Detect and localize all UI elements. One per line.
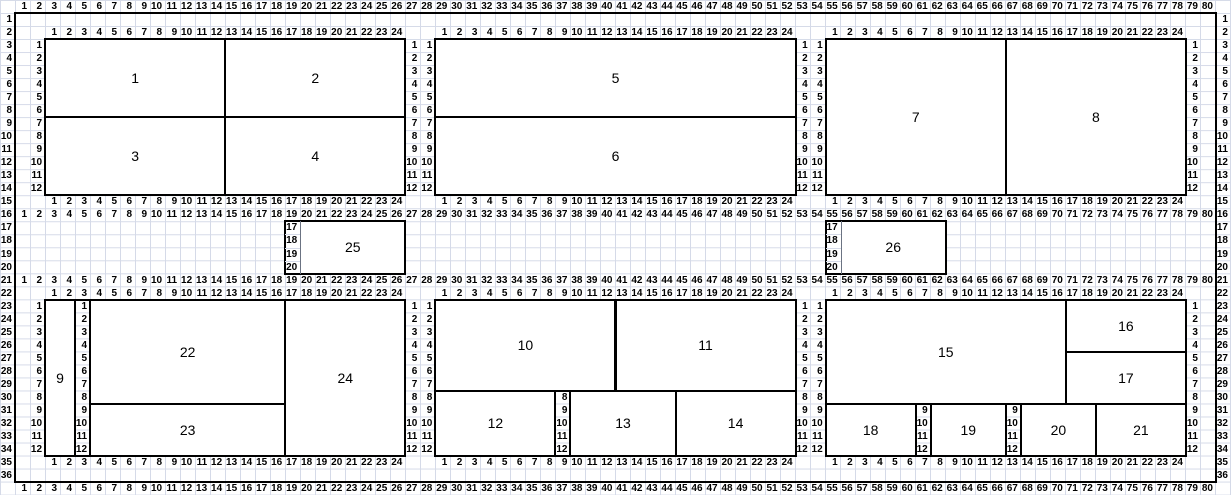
inner-column-header-cell: 7 (916, 456, 931, 469)
column-header-cell: 73 (1096, 274, 1111, 287)
inner-column-header-cell: 9 (555, 195, 570, 208)
column-header-cell: 49 (736, 0, 751, 13)
inner-row-header-cell: 11 (796, 169, 811, 182)
row-header-cell: 6 (1216, 78, 1231, 91)
column-header-cell: 62 (931, 482, 946, 495)
inner-row-header-cell: 7 (1186, 117, 1201, 130)
column-header-cell: 71 (1066, 274, 1081, 287)
column-header-cell: 69 (1036, 482, 1051, 495)
column-header-cell: 47 (706, 208, 721, 221)
inner-row-header-cell: 12 (811, 182, 826, 195)
column-header-cell: 68 (1021, 0, 1036, 13)
label-cell: 12 (916, 443, 931, 456)
inner-row-header-cell: 1 (405, 39, 420, 52)
column-header-cell: 9 (135, 0, 150, 13)
column-header-cell: 79 (1186, 0, 1201, 13)
inner-column-header-cell: 8 (150, 456, 165, 469)
label-cell: 3 (75, 326, 90, 339)
column-header-cell: 63 (946, 482, 961, 495)
row-header-cell: 35 (0, 456, 15, 469)
column-header-cell: 4 (60, 274, 75, 287)
row-header-cell: 10 (0, 130, 15, 143)
column-header-cell: 43 (646, 208, 661, 221)
inner-row-header-cell: 10 (30, 156, 45, 169)
box-label-9: 9 (45, 300, 75, 456)
column-header-cell: 77 (1156, 208, 1171, 221)
row-header-cell: 26 (0, 339, 15, 352)
column-header-cell: 44 (661, 0, 676, 13)
column-header-cell: 48 (721, 0, 736, 13)
inner-column-header-cell: 15 (255, 195, 270, 208)
column-header-cell: 49 (736, 482, 751, 495)
inner-row-header-cell: 3 (796, 65, 811, 78)
inner-row-header-cell: 7 (811, 117, 826, 130)
label-cell: 11 (555, 430, 570, 443)
inner-row-header-cell: 1 (405, 300, 420, 313)
inner-row-header-cell: 6 (30, 365, 45, 378)
column-header-cell: 45 (676, 208, 691, 221)
inner-column-header-cell: 6 (120, 456, 135, 469)
row-header-cell: 29 (1216, 378, 1231, 391)
row-header-cell: 8 (1216, 104, 1231, 117)
column-header-cell: 33 (495, 208, 510, 221)
inner-row-header-cell: 5 (811, 91, 826, 104)
column-header-cell: 7 (105, 482, 120, 495)
label-cell: 11 (916, 430, 931, 443)
inner-row-header-cell: 1 (420, 39, 435, 52)
row-header-cell: 18 (0, 234, 15, 247)
row-header-cell: 14 (1216, 182, 1231, 195)
inner-column-header-cell: 23 (375, 195, 390, 208)
column-header-cell: 18 (270, 0, 285, 13)
column-header-cell: 28 (420, 208, 435, 221)
inner-row-header-cell: 2 (30, 313, 45, 326)
column-header-cell: 54 (811, 482, 826, 495)
box-label-17: 17 (1066, 352, 1186, 404)
inner-column-header-cell: 21 (736, 195, 751, 208)
column-header-cell: 23 (345, 0, 360, 13)
column-header-cell: 63 (946, 274, 961, 287)
inner-column-header-cell: 4 (480, 456, 495, 469)
column-header-cell: 47 (706, 0, 721, 13)
column-header-cell: 57 (856, 482, 871, 495)
column-header-cell: 34 (510, 274, 525, 287)
column-header-cell: 80 (1201, 0, 1216, 13)
inner-column-header-cell: 13 (1006, 456, 1021, 469)
column-header-cell: 71 (1066, 482, 1081, 495)
inner-row-header-cell: 12 (1186, 182, 1201, 195)
column-header-cell: 66 (991, 482, 1006, 495)
column-header-cell: 45 (676, 482, 691, 495)
column-header-cell: 15 (225, 0, 240, 13)
column-header-cell: 53 (796, 208, 811, 221)
inner-row-header-cell: 5 (1186, 91, 1201, 104)
column-header-cell: 45 (676, 0, 691, 13)
inner-column-header-cell: 12 (210, 195, 225, 208)
column-header-cell: 79 (1186, 482, 1201, 495)
column-header-cell: 8 (120, 0, 135, 13)
inner-row-header-cell: 9 (811, 404, 826, 417)
column-header-cell: 11 (165, 0, 180, 13)
inner-row-header-cell: 12 (796, 443, 811, 456)
row-header-cell: 9 (0, 117, 15, 130)
row-header-cell: 22 (1216, 287, 1231, 300)
inner-row-header-cell: 7 (420, 378, 435, 391)
inner-column-header-cell: 16 (661, 195, 676, 208)
column-header-cell: 9 (135, 208, 150, 221)
inner-column-header-cell: 3 (465, 195, 480, 208)
label-cell: 9 (75, 404, 90, 417)
inner-column-header-cell: 18 (300, 456, 315, 469)
column-header-cell: 73 (1096, 208, 1111, 221)
label-cell: 20 (285, 261, 300, 274)
column-header-cell: 45 (676, 274, 691, 287)
column-header-cell: 41 (616, 274, 631, 287)
inner-row-header-cell: 8 (811, 391, 826, 404)
inner-column-header-cell: 8 (150, 195, 165, 208)
column-header-cell: 30 (450, 208, 465, 221)
column-header-cell: 46 (691, 482, 706, 495)
inner-column-header-cell: 8 (540, 195, 555, 208)
column-header-cell: 55 (826, 0, 841, 13)
row-header-cell: 1 (0, 13, 15, 26)
column-header-cell: 31 (465, 482, 480, 495)
column-header-cell: 60 (901, 274, 916, 287)
box-label-6: 6 (435, 117, 795, 195)
column-header-cell: 8 (120, 482, 135, 495)
column-header-cell: 1 (15, 274, 30, 287)
row-header-cell: 30 (1216, 391, 1231, 404)
inner-column-header-cell: 1 (826, 195, 841, 208)
column-header-cell: 67 (1006, 274, 1021, 287)
column-header-cell: 10 (150, 274, 165, 287)
inner-row-header-cell: 8 (420, 130, 435, 143)
inner-column-header-cell: 9 (165, 195, 180, 208)
column-header-cell: 63 (946, 0, 961, 13)
column-header-cell: 46 (691, 208, 706, 221)
column-header-cell: 33 (495, 0, 510, 13)
column-header-cell: 59 (886, 482, 901, 495)
inner-column-header-cell: 24 (1171, 195, 1186, 208)
inner-row-header-cell: 8 (30, 130, 45, 143)
inner-row-header-cell: 11 (811, 430, 826, 443)
column-header-cell: 2 (30, 482, 45, 495)
column-header-cell: 51 (766, 274, 781, 287)
inner-column-header-cell: 8 (540, 456, 555, 469)
inner-row-header-cell: 4 (1186, 78, 1201, 91)
inner-row-header-cell: 2 (405, 52, 420, 65)
column-header-cell: 34 (510, 482, 525, 495)
column-header-cell: 12 (180, 482, 195, 495)
inner-row-header-cell: 10 (811, 156, 826, 169)
inner-column-header-cell: 9 (165, 456, 180, 469)
inner-row-header-cell: 3 (1186, 65, 1201, 78)
inner-row-header-cell: 1 (420, 300, 435, 313)
inner-column-header-cell: 24 (781, 456, 796, 469)
column-header-cell: 14 (210, 0, 225, 13)
column-header-cell: 74 (1111, 0, 1126, 13)
box-label-7: 7 (826, 39, 1006, 195)
inner-column-header-cell: 7 (525, 456, 540, 469)
column-header-cell: 49 (736, 208, 751, 221)
column-header-cell: 35 (525, 482, 540, 495)
column-header-cell: 17 (255, 482, 270, 495)
column-header-cell: 43 (646, 274, 661, 287)
inner-column-header-cell: 5 (886, 456, 901, 469)
column-header-cell: 41 (616, 482, 631, 495)
inner-column-header-cell: 12 (991, 456, 1006, 469)
column-header-cell: 4 (60, 208, 75, 221)
label-cell: 10 (75, 417, 90, 430)
label-cell: 10 (555, 417, 570, 430)
inner-column-header-cell: 1 (435, 195, 450, 208)
column-header-cell: 9 (135, 274, 150, 287)
inner-column-header-cell: 15 (1036, 195, 1051, 208)
column-header-cell: 33 (495, 482, 510, 495)
label-cell: 10 (916, 417, 931, 430)
inner-row-header-cell: 2 (420, 52, 435, 65)
column-header-cell: 27 (405, 274, 420, 287)
row-header-cell: 14 (0, 182, 15, 195)
inner-row-header-cell: 2 (1186, 313, 1201, 326)
inner-column-header-cell: 5 (495, 456, 510, 469)
inner-column-header-cell: 5 (495, 195, 510, 208)
inner-column-header-cell: 15 (255, 456, 270, 469)
column-header-cell: 42 (631, 208, 646, 221)
inner-row-header-cell: 4 (405, 339, 420, 352)
label-cell: 2 (75, 313, 90, 326)
inner-row-header-cell: 12 (405, 443, 420, 456)
row-header-cell: 10 (1216, 130, 1231, 143)
column-header-cell: 50 (751, 274, 766, 287)
inner-column-header-cell: 1 (45, 456, 60, 469)
inner-row-header-cell: 11 (30, 430, 45, 443)
inner-column-header-cell: 4 (871, 195, 886, 208)
row-header-cell: 23 (1216, 300, 1231, 313)
inner-row-header-cell: 10 (405, 417, 420, 430)
row-header-cell: 28 (1216, 365, 1231, 378)
inner-row-header-cell: 12 (1186, 443, 1201, 456)
inner-row-header-cell: 4 (30, 78, 45, 91)
column-header-cell: 1 (15, 0, 30, 13)
inner-row-header-cell: 7 (796, 117, 811, 130)
column-header-cell: 42 (631, 274, 646, 287)
inner-row-header-cell: 1 (796, 300, 811, 313)
column-header-cell: 36 (540, 208, 555, 221)
inner-row-header-cell: 5 (30, 91, 45, 104)
column-header-cell: 11 (165, 208, 180, 221)
label-cell: 9 (555, 404, 570, 417)
column-header-cell: 35 (525, 208, 540, 221)
label-cell: 9 (916, 404, 931, 417)
inner-column-header-cell: 2 (60, 195, 75, 208)
column-header-cell: 56 (841, 274, 856, 287)
column-header-cell: 56 (841, 0, 856, 13)
inner-row-header-cell: 5 (405, 352, 420, 365)
column-header-cell: 20 (300, 482, 315, 495)
column-header-cell: 13 (195, 208, 210, 221)
label-cell: 12 (555, 443, 570, 456)
row-header-cell: 15 (1216, 195, 1231, 208)
column-header-cell: 42 (631, 482, 646, 495)
column-header-cell: 3 (45, 482, 60, 495)
inner-column-header-cell: 20 (330, 456, 345, 469)
inner-row-header-cell: 2 (811, 313, 826, 326)
column-header-cell: 1 (15, 208, 30, 221)
inner-row-header-cell: 12 (30, 443, 45, 456)
inner-column-header-cell: 10 (961, 195, 976, 208)
inner-column-header-cell: 5 (105, 456, 120, 469)
column-header-cell: 70 (1051, 0, 1066, 13)
label-cell: 1 (75, 300, 90, 313)
inner-row-header-cell: 9 (796, 404, 811, 417)
box-label-8: 8 (1006, 39, 1186, 195)
column-header-cell: 80 (1201, 208, 1216, 221)
column-header-cell: 22 (330, 0, 345, 13)
column-header-cell: 18 (270, 274, 285, 287)
inner-row-header-cell: 8 (1186, 391, 1201, 404)
label-cell: 17 (285, 221, 300, 234)
inner-column-header-cell: 1 (45, 195, 60, 208)
inner-column-header-cell: 20 (721, 456, 736, 469)
inner-row-header-cell: 10 (1186, 156, 1201, 169)
inner-column-header-cell: 17 (676, 456, 691, 469)
column-header-cell: 50 (751, 482, 766, 495)
column-header-cell: 25 (375, 482, 390, 495)
inner-row-header-cell: 10 (796, 156, 811, 169)
inner-column-header-cell: 19 (315, 456, 330, 469)
column-header-cell: 57 (856, 274, 871, 287)
column-header-cell: 15 (225, 482, 240, 495)
column-header-cell: 25 (375, 0, 390, 13)
inner-column-header-cell: 5 (886, 195, 901, 208)
inner-row-header-cell: 11 (420, 169, 435, 182)
column-header-cell: 58 (871, 274, 886, 287)
column-header-cell: 73 (1096, 0, 1111, 13)
row-header-cell: 2 (0, 26, 15, 39)
row-header-cell: 36 (0, 469, 15, 482)
column-header-cell: 8 (120, 274, 135, 287)
column-header-cell: 54 (811, 0, 826, 13)
row-header-cell: 1 (1216, 13, 1231, 26)
inner-column-header-cell: 2 (841, 456, 856, 469)
column-header-cell: 20 (300, 274, 315, 287)
column-header-cell: 19 (285, 482, 300, 495)
label-cell: 7 (75, 378, 90, 391)
label-cell: 18 (285, 234, 300, 247)
column-header-cell: 3 (45, 208, 60, 221)
row-header-cell: 35 (1216, 456, 1231, 469)
row-header-cell: 12 (1216, 156, 1231, 169)
inner-column-header-cell: 17 (1066, 456, 1081, 469)
column-header-cell: 4 (60, 482, 75, 495)
column-header-cell: 74 (1111, 482, 1126, 495)
row-header-cell: 33 (1216, 430, 1231, 443)
inner-row-header-cell: 3 (420, 326, 435, 339)
row-header-cell: 31 (1216, 404, 1231, 417)
inner-column-header-cell: 14 (631, 195, 646, 208)
inner-column-header-cell: 18 (691, 195, 706, 208)
column-header-cell: 12 (180, 0, 195, 13)
column-header-cell: 5 (75, 208, 90, 221)
inner-row-header-cell: 5 (420, 91, 435, 104)
inner-row-header-cell: 4 (811, 78, 826, 91)
column-header-cell: 29 (435, 0, 450, 13)
inner-row-header-cell: 3 (405, 326, 420, 339)
inner-row-header-cell: 1 (1186, 300, 1201, 313)
column-header-cell: 16 (240, 274, 255, 287)
inner-row-header-cell: 5 (30, 352, 45, 365)
column-header-cell: 74 (1111, 208, 1126, 221)
inner-row-header-cell: 7 (30, 378, 45, 391)
inner-row-header-cell: 9 (1186, 143, 1201, 156)
inner-column-header-cell: 21 (1126, 195, 1141, 208)
column-header-cell: 76 (1141, 274, 1156, 287)
column-header-cell: 27 (405, 0, 420, 13)
inner-column-header-cell: 2 (60, 456, 75, 469)
inner-row-header-cell: 7 (405, 378, 420, 391)
inner-row-header-cell: 8 (1186, 130, 1201, 143)
inner-column-header-cell: 1 (435, 456, 450, 469)
inner-row-header-cell: 9 (405, 143, 420, 156)
inner-column-header-cell: 14 (1021, 456, 1036, 469)
column-header-cell: 71 (1066, 208, 1081, 221)
inner-row-header-cell: 6 (796, 104, 811, 117)
label-cell: 4 (75, 339, 90, 352)
inner-column-header-cell: 22 (1141, 195, 1156, 208)
column-header-cell: 12 (180, 274, 195, 287)
column-header-cell: 11 (165, 482, 180, 495)
inner-row-header-cell: 1 (811, 300, 826, 313)
inner-column-header-cell: 14 (240, 456, 255, 469)
inner-column-header-cell: 13 (616, 456, 631, 469)
inner-row-header-cell: 9 (30, 143, 45, 156)
inner-row-header-cell: 6 (1186, 365, 1201, 378)
inner-column-header-cell: 14 (631, 456, 646, 469)
row-header-cell: 17 (0, 221, 15, 234)
column-header-cell: 59 (886, 0, 901, 13)
column-header-cell: 18 (270, 482, 285, 495)
column-header-cell: 38 (570, 208, 585, 221)
inner-row-header-cell: 6 (30, 104, 45, 117)
row-header-cell: 11 (1216, 143, 1231, 156)
inner-column-header-cell: 6 (510, 195, 525, 208)
inner-column-header-cell: 3 (75, 456, 90, 469)
column-header-cell: 62 (931, 274, 946, 287)
row-header-cell: 32 (1216, 417, 1231, 430)
column-header-cell: 58 (871, 0, 886, 13)
column-header-cell: 72 (1081, 0, 1096, 13)
inner-row-header-cell: 5 (420, 352, 435, 365)
column-header-cell: 54 (811, 208, 826, 221)
row-header-cell: 34 (0, 443, 15, 456)
column-header-cell: 76 (1141, 482, 1156, 495)
column-header-cell: 40 (600, 274, 615, 287)
row-header-cell: 6 (0, 78, 15, 91)
label-cell: 10 (1006, 417, 1021, 430)
inner-row-header-cell: 5 (1186, 352, 1201, 365)
column-header-cell: 14 (210, 482, 225, 495)
column-header-cell: 48 (721, 482, 736, 495)
column-header-cell: 3 (45, 0, 60, 13)
column-header-cell: 11 (165, 274, 180, 287)
column-header-cell: 6 (90, 0, 105, 13)
row-header-cell: 12 (0, 156, 15, 169)
inner-column-header-cell: 10 (570, 195, 585, 208)
label-cell: 8 (75, 391, 90, 404)
column-header-cell: 26 (390, 0, 405, 13)
column-header-cell: 57 (856, 0, 871, 13)
